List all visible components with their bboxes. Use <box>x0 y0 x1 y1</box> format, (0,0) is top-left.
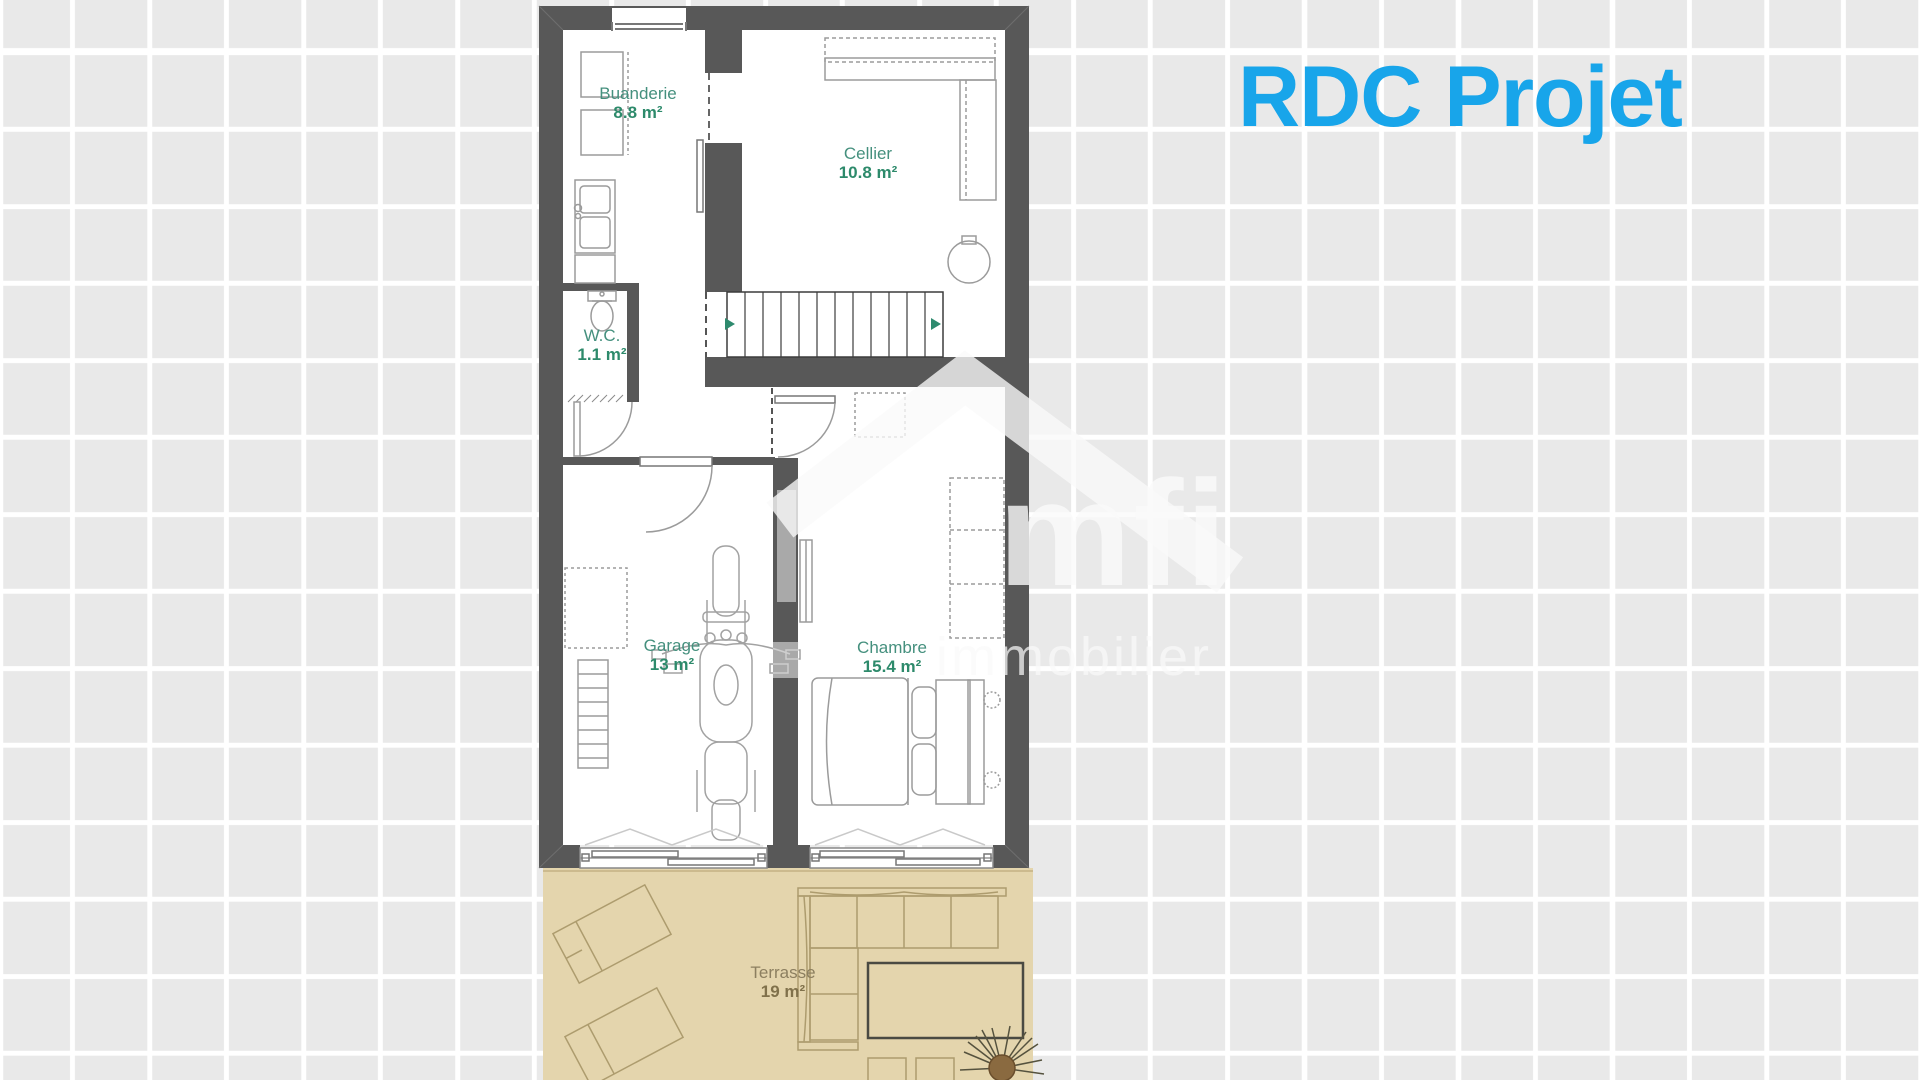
room-label-wc: W.C. 1.1 m² <box>577 326 626 364</box>
page-title: RDC Projet <box>1238 48 1682 147</box>
room-area: 1.1 m² <box>577 345 626 364</box>
room-name: Garage <box>644 636 701 655</box>
room-name: Chambre <box>857 638 927 657</box>
floor-plan <box>0 0 1920 1080</box>
room-area: 19 m² <box>750 982 815 1001</box>
room-area: 13 m² <box>644 655 701 674</box>
room-name: Buanderie <box>599 84 677 103</box>
room-area: 15.4 m² <box>857 657 927 676</box>
room-label-garage: Garage 13 m² <box>644 636 701 674</box>
room-area: 8.8 m² <box>599 103 677 122</box>
room-name: Cellier <box>839 144 898 163</box>
room-name: W.C. <box>577 326 626 345</box>
window-icon <box>612 8 686 31</box>
room-label-cellier: Cellier 10.8 m² <box>839 144 898 182</box>
room-name: Terrasse <box>750 963 815 982</box>
room-area: 10.8 m² <box>839 163 898 182</box>
room-label-chambre: Chambre 15.4 m² <box>857 638 927 676</box>
stairs <box>706 292 943 357</box>
room-label-buanderie: Buanderie 8.8 m² <box>599 84 677 122</box>
room-label-terrasse: Terrasse 19 m² <box>750 963 815 1001</box>
canvas: mfi immobilier Buanderie 8.8 m² Cellier … <box>0 0 1920 1080</box>
